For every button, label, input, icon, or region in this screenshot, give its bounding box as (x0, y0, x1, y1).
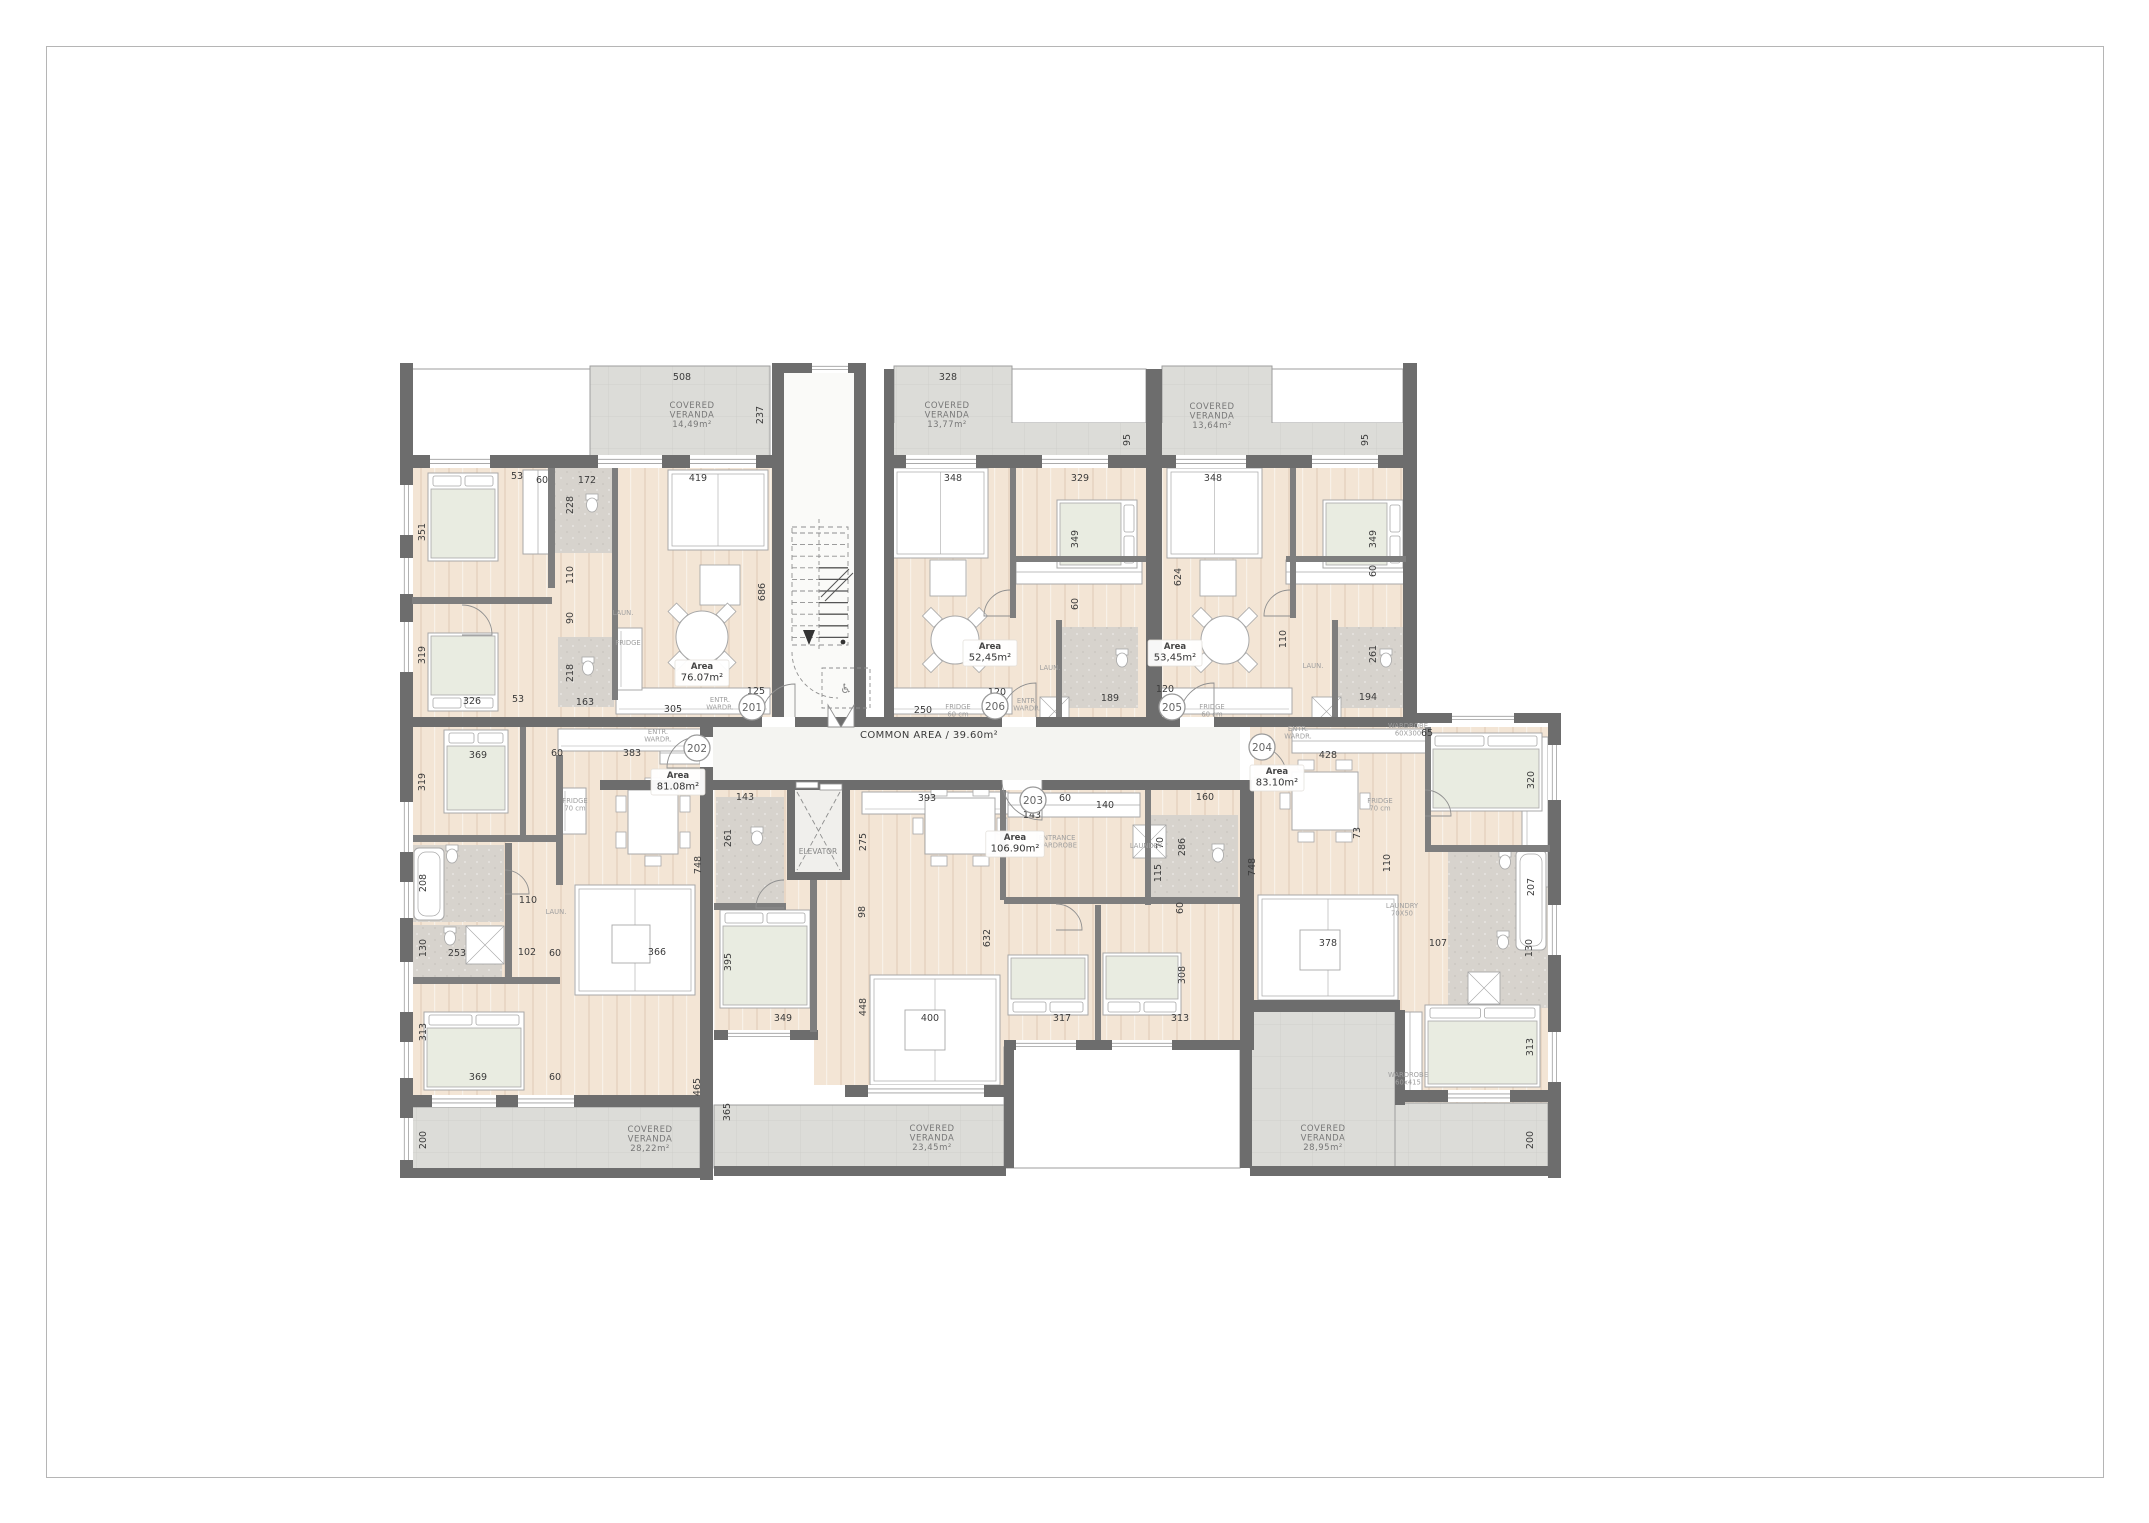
bed (428, 473, 498, 561)
fixture-label: FRIDGE (615, 639, 640, 647)
dimension-label: 110 (565, 566, 576, 584)
fixture-label: LAUN. (1303, 662, 1324, 670)
window (400, 802, 413, 852)
dimension-label: 98 (857, 906, 868, 918)
partition-wall (412, 835, 558, 842)
dimension-label: 60 (1070, 598, 1081, 610)
unit-badge-201: 201 (739, 694, 765, 720)
dimension-label: 110 (519, 895, 537, 906)
dimension-label: 189 (1101, 693, 1119, 704)
fixture-label: FRIDGE70 cm (562, 797, 587, 813)
dimension-label: 351 (417, 523, 428, 541)
wall (787, 790, 795, 880)
dimension-label: 163 (576, 697, 594, 708)
dimension-label: 624 (1173, 568, 1184, 586)
dimension-label: 393 (918, 793, 936, 804)
svg-text:52,45m²: 52,45m² (969, 653, 1011, 664)
dimension-label: 348 (1204, 473, 1222, 484)
dimension-label: 110 (1278, 630, 1289, 648)
elevator-door (820, 784, 842, 790)
dimension-label: 120 (1156, 684, 1174, 695)
partition-wall (520, 727, 526, 835)
svg-text:206: 206 (985, 701, 1005, 713)
toilet (1116, 649, 1128, 667)
dimension-label: 95 (1122, 434, 1133, 446)
dimension-label: 317 (1053, 1013, 1071, 1024)
dimension-label: 313 (418, 1023, 429, 1041)
fixture-label: ENTR.WARDR. (1284, 725, 1312, 741)
floor-region (714, 1105, 1004, 1168)
fixture-label: ENTR.WARDR. (644, 728, 672, 744)
partition-wall (1010, 468, 1016, 618)
fixture-label: LAUN. (546, 908, 567, 916)
dimension-label: 319 (417, 773, 428, 791)
toilet (1499, 851, 1511, 869)
dimension-label: 748 (693, 856, 704, 874)
dimension-label: 275 (858, 833, 869, 851)
dimension-label: 365 (722, 1103, 733, 1121)
dimension-label: 313 (1525, 1038, 1536, 1056)
dimension-label: 172 (578, 475, 596, 486)
shower (466, 926, 504, 964)
veranda-label: COVEREDVERANDA13,77m² (925, 401, 970, 430)
veranda-label: COVEREDVERANDA14,49m² (670, 401, 715, 430)
svg-text:106.90m²: 106.90m² (991, 844, 1040, 855)
dimension-label: 261 (723, 829, 734, 847)
window (432, 1095, 496, 1107)
svg-text:Area: Area (979, 642, 1002, 652)
dimension-label: 218 (565, 664, 576, 682)
dimension-label: 90 (565, 612, 576, 624)
toilet (582, 657, 594, 675)
partition-wall (1425, 727, 1431, 847)
svg-text:81.08m²: 81.08m² (657, 782, 699, 793)
window (906, 455, 976, 468)
wall (842, 790, 850, 880)
dimension-label: 250 (914, 705, 932, 716)
unit-badge-205: 205 (1159, 694, 1185, 720)
dimension-label: 60 (1175, 902, 1186, 914)
dimension-label: 748 (1247, 858, 1258, 876)
elevator-label: ELEVATOR (799, 847, 838, 856)
wall (1250, 1000, 1400, 1012)
fixture-label: ENTR.WARDR. (1013, 697, 1041, 713)
window (812, 363, 848, 373)
svg-text:76.07m²: 76.07m² (681, 673, 723, 684)
dimension-label: 130 (1524, 939, 1535, 957)
window (1548, 745, 1561, 800)
floor-region (1272, 369, 1403, 423)
floor-region (1004, 1047, 1240, 1168)
wall (787, 872, 850, 880)
dimension-label: 200 (418, 1131, 429, 1149)
coffee-table (700, 565, 740, 605)
dimension-label: 419 (689, 473, 707, 484)
dimension-label: 194 (1359, 692, 1377, 703)
floor-region (412, 369, 590, 457)
window (400, 622, 413, 672)
dimension-label: 349 (774, 1013, 792, 1024)
window (868, 1085, 984, 1097)
floor-plan-svg: ♿508237328959560172419348329348351319319… (0, 0, 2149, 1523)
window (1548, 905, 1561, 955)
bed (1103, 953, 1181, 1015)
common-area-label: COMMON AREA / 39.60m² (860, 730, 998, 741)
window (430, 455, 490, 468)
svg-text:Area: Area (1164, 642, 1187, 652)
floor-region (1012, 369, 1146, 423)
door-opening (1002, 717, 1036, 727)
partition-wall (1095, 905, 1101, 1040)
partition-wall (810, 880, 817, 1032)
unit-area-label-203: Area106.90m² (986, 831, 1044, 857)
veranda-label: COVEREDVERANDA13,64m² (1190, 402, 1235, 431)
partition-wall (1286, 556, 1406, 562)
svg-text:201: 201 (742, 702, 762, 714)
unit-area-label-204: Area83.10m² (1250, 765, 1304, 791)
floor-region (714, 1040, 814, 1103)
svg-text:53,45m²: 53,45m² (1154, 653, 1196, 664)
unit-area-label-202: Area81.08m² (651, 769, 705, 795)
dimension-label: 349 (1368, 530, 1379, 548)
partition-wall (412, 977, 560, 984)
partition-wall (1004, 897, 1240, 904)
coffee-table (1300, 930, 1340, 970)
dimension-label: 53 (511, 471, 523, 482)
shower (1468, 972, 1500, 1004)
toilet (751, 827, 763, 845)
unit-badge-204: 204 (1249, 734, 1275, 760)
dimension-label: 140 (1096, 800, 1114, 811)
wall (1250, 1166, 1550, 1176)
unit-area-label-205: Area53,45m² (1148, 640, 1202, 666)
window (400, 1042, 413, 1078)
dimension-label: 160 (1196, 792, 1214, 803)
dimension-label: 73 (1352, 827, 1363, 839)
window (518, 1095, 574, 1107)
toilet (586, 494, 598, 512)
bed (1008, 955, 1088, 1015)
window (1448, 1090, 1510, 1102)
window (400, 882, 413, 918)
coffee-table (612, 925, 650, 963)
dimension-label: 261 (1368, 645, 1379, 663)
dimension-label: 286 (1177, 838, 1188, 856)
unit-area-label-206: Area52,45m² (963, 640, 1017, 666)
partition-wall (548, 468, 555, 588)
elevator-door (796, 782, 818, 788)
dimension-label: 632 (982, 929, 993, 947)
dimension-label: 60 (551, 748, 563, 759)
wall (714, 1166, 1006, 1176)
coffee-table (930, 560, 966, 596)
svg-text:203: 203 (1023, 795, 1043, 807)
window (690, 455, 756, 468)
dimension-label: 686 (757, 583, 768, 601)
wall (884, 369, 894, 717)
dimension-label: 320 (1526, 771, 1537, 789)
partition-wall (612, 468, 618, 700)
dimension-label: 95 (1360, 434, 1371, 446)
window (400, 962, 413, 1012)
coffee-table (1200, 560, 1236, 596)
door-opening (1180, 717, 1214, 727)
dimension-label: 369 (469, 750, 487, 761)
fixture-label: LAUN. (613, 609, 634, 617)
window (400, 485, 413, 535)
dimension-label: 200 (1525, 1131, 1536, 1149)
dimension-label: 60 (1368, 565, 1379, 577)
dimension-label: 328 (939, 372, 957, 383)
svg-text:Area: Area (691, 662, 714, 672)
partition-wall (1016, 556, 1146, 562)
unit-area-label-201: Area76.07m² (675, 660, 729, 686)
bathtub (1516, 850, 1546, 950)
window (1016, 1040, 1076, 1050)
dimension-label: 428 (1319, 750, 1337, 761)
window (1042, 455, 1108, 468)
dimension-label: 395 (723, 953, 734, 971)
dimension-label: 348 (944, 473, 962, 484)
wall (400, 1168, 712, 1178)
svg-text:83.10m²: 83.10m² (1256, 778, 1298, 789)
svg-text:205: 205 (1162, 702, 1182, 714)
svg-text:Area: Area (667, 771, 690, 781)
toilet (446, 845, 458, 863)
dimension-label: 369 (469, 1072, 487, 1083)
fixture-label: ENTR.WARDR. (706, 696, 734, 712)
dimension-label: 60 (1059, 793, 1071, 804)
wall (400, 717, 1417, 727)
partition-wall (1425, 845, 1550, 852)
toilet (1380, 649, 1392, 667)
dimension-label: 53 (512, 694, 524, 705)
sofa (668, 470, 768, 550)
veranda-label: COVEREDVERANDA28,22m² (628, 1125, 673, 1154)
window (400, 1118, 413, 1160)
dimension-label: 102 (518, 947, 536, 958)
partition-wall (1332, 620, 1338, 717)
wall (1403, 363, 1417, 723)
fixture-label: FRIDGE70 cm (1367, 797, 1392, 813)
dimension-label: 115 (1153, 864, 1164, 882)
floor-region (716, 797, 784, 903)
drawing-sheet: ♿508237328959560172419348329348351319319… (0, 0, 2149, 1523)
wall (854, 363, 866, 727)
kitchen-counter (616, 628, 642, 690)
window (400, 558, 413, 594)
dimension-label: 508 (673, 372, 691, 383)
partition-wall (412, 597, 552, 604)
fixture-label: LAUNDRY (1130, 842, 1163, 850)
window (728, 1030, 790, 1040)
dimension-label: 378 (1319, 938, 1337, 949)
dimension-label: 465 (692, 1078, 703, 1096)
dimension-label: 207 (1526, 878, 1537, 896)
partition-wall (505, 843, 512, 977)
dimension-label: 329 (1071, 473, 1089, 484)
dimension-label: 228 (565, 496, 576, 514)
dimension-label: 366 (648, 947, 666, 958)
dimension-label: 107 (1429, 938, 1447, 949)
window (1176, 455, 1246, 468)
veranda-label: COVEREDVERANDA23,45m² (910, 1124, 955, 1153)
dimension-label: 60 (549, 1072, 561, 1083)
dimension-label: 383 (623, 748, 641, 759)
svg-text:202: 202 (687, 743, 707, 755)
fixture-label: FRIDGE60 cm (1199, 703, 1224, 719)
dimension-label: 308 (1177, 966, 1188, 984)
dimension-label: 208 (418, 874, 429, 892)
wall (1004, 1040, 1014, 1168)
partition-wall (714, 903, 786, 910)
dimension-label: 237 (755, 406, 766, 424)
dimension-label: 60 (549, 948, 561, 959)
dimension-label: 305 (664, 704, 682, 715)
fixture-label: FRIDGE60 cm (945, 703, 970, 719)
dimension-label: 110 (1382, 854, 1393, 872)
wheelchair-icon: ♿ (840, 682, 852, 697)
dimension-label: 143 (736, 792, 754, 803)
svg-text:204: 204 (1252, 742, 1272, 754)
bed (444, 730, 508, 813)
dimension-label: 313 (1171, 1013, 1189, 1024)
veranda-label: COVEREDVERANDA28,95m² (1301, 1124, 1346, 1153)
svg-text:Area: Area (1266, 767, 1289, 777)
window (1312, 455, 1378, 468)
door-opening (762, 717, 795, 727)
wall (1240, 1040, 1252, 1168)
wall (772, 363, 784, 727)
dimension-label: 448 (858, 998, 869, 1016)
dimension-label: 349 (1070, 530, 1081, 548)
unit-badge-202: 202 (684, 735, 710, 761)
fixture-label: LAUN. (1040, 664, 1061, 672)
sofa (893, 468, 988, 558)
window (598, 455, 662, 468)
svg-text:Area: Area (1004, 833, 1027, 843)
dimension-label: 326 (463, 696, 481, 707)
dimension-label: 130 (418, 939, 429, 957)
toilet (444, 927, 456, 945)
window (1548, 1032, 1561, 1082)
unit-badge-203: 203 (1020, 787, 1046, 813)
window (1452, 713, 1514, 723)
dimension-label: 400 (921, 1013, 939, 1024)
unit-badge-206: 206 (982, 693, 1008, 719)
dimension-label: 253 (448, 948, 466, 959)
toilet (1497, 931, 1509, 949)
toilet (1212, 844, 1224, 862)
dimension-label: 60 (536, 475, 548, 486)
partition-wall (556, 755, 563, 885)
bed (1425, 1005, 1540, 1087)
dimension-label: 319 (417, 646, 428, 664)
window (1112, 1040, 1172, 1050)
partition-wall (1290, 468, 1296, 618)
